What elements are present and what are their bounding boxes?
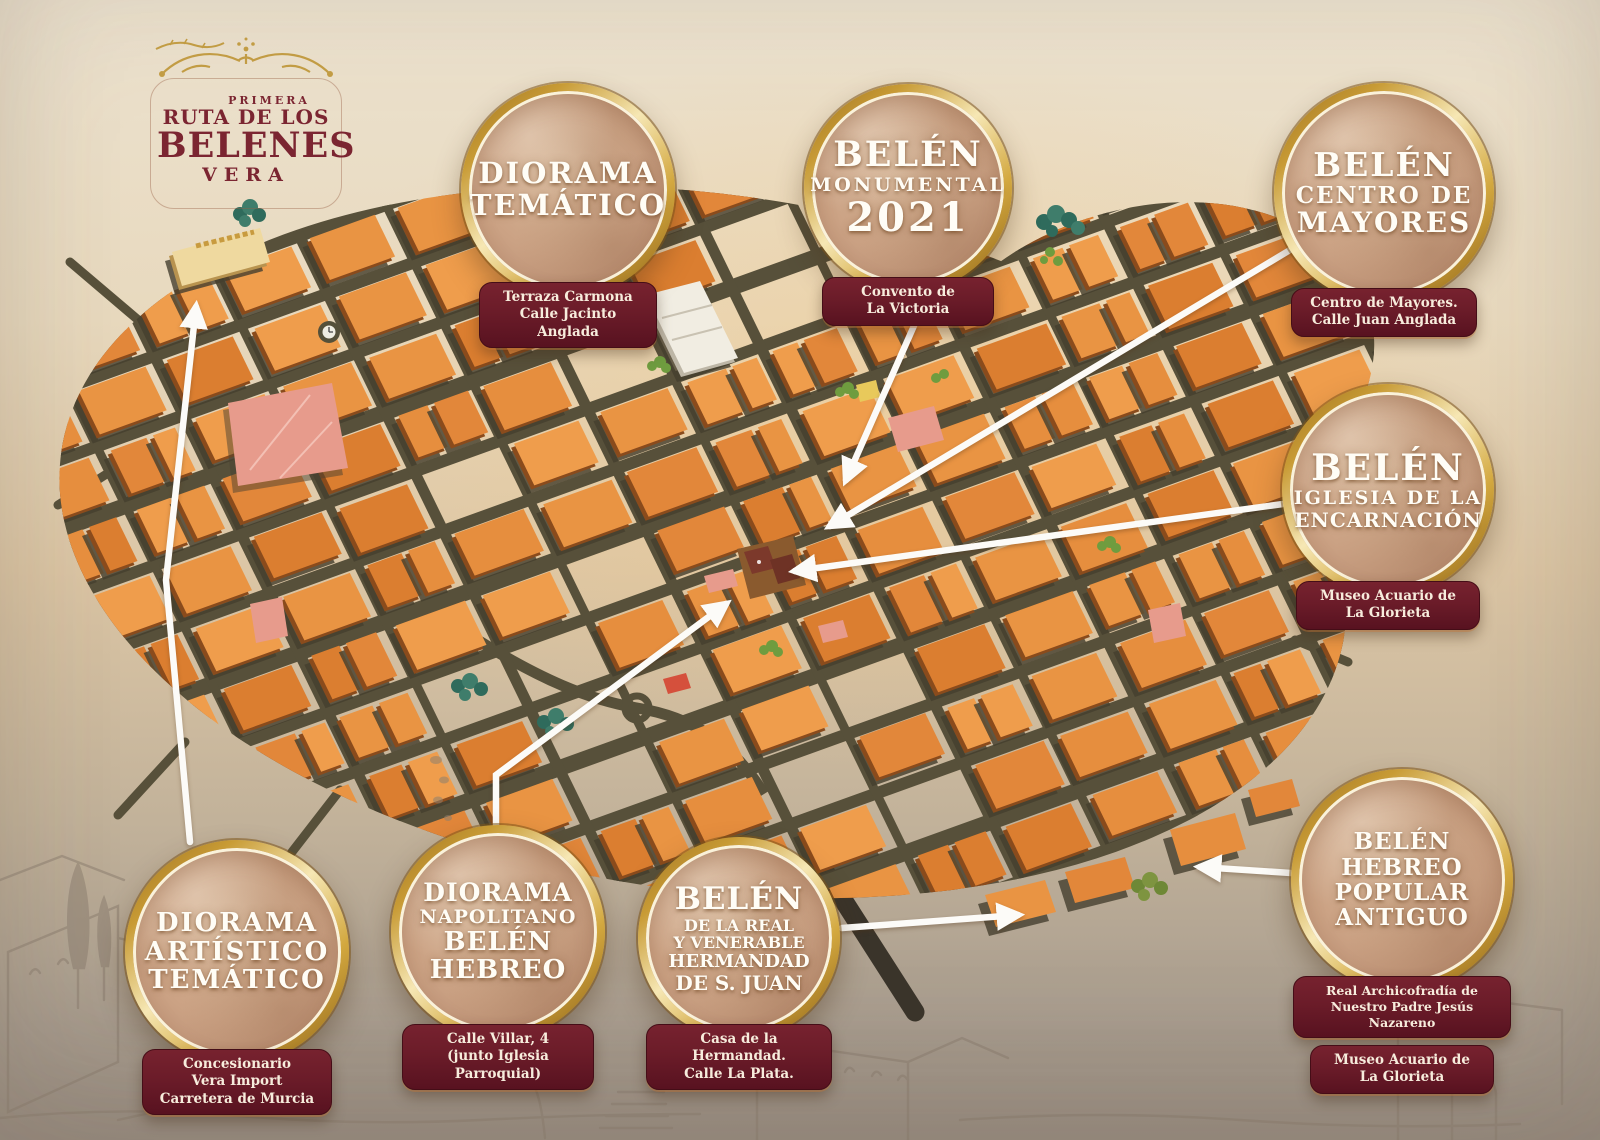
plaque-line: (junto Iglesia Parroquial) xyxy=(411,1048,585,1083)
title-line: DE S. JUAN xyxy=(675,972,802,994)
plaque-line: Casa de la Hermandad. xyxy=(655,1031,823,1066)
badge-belen-centro-de-mayores: BELÉN CENTRO DE MAYORES Centro de Mayore… xyxy=(1274,83,1494,337)
arrow-diorama-napolitano xyxy=(496,604,726,825)
badge-plaque: Calle Villar, 4 (junto Iglesia Parroquia… xyxy=(402,1024,594,1090)
title-line: NAPOLITANO xyxy=(420,907,577,928)
plaque-line: Calle La Plata. xyxy=(655,1066,823,1083)
title-line: HEBREO xyxy=(1341,855,1462,880)
title-line: ANTIGUO xyxy=(1335,905,1468,930)
plaque-line: Centro de Mayores. xyxy=(1300,295,1468,312)
badge-circle: BELÉN HEBREO POPULAR ANTIGUO xyxy=(1291,769,1513,991)
plaque-line: Real Archicofradía de xyxy=(1302,983,1502,999)
badge-circle: DIORAMA TEMÁTICO xyxy=(461,83,675,297)
title-line: ARTÍSTICO xyxy=(145,938,329,967)
badge-title: DIORAMA ARTÍSTICO TEMÁTICO xyxy=(133,848,341,1056)
plaque-line: Convento de xyxy=(831,284,985,301)
badge-plaque: Concesionario Vera Import Carretera de M… xyxy=(142,1049,332,1115)
title-line: POPULAR xyxy=(1335,880,1470,905)
badge-title: BELÉN IGLESIA DE LA ENCARNACIÓN xyxy=(1290,392,1486,588)
logo-line: BELENES xyxy=(157,128,335,165)
badge-circle: BELÉN CENTRO DE MAYORES xyxy=(1274,83,1494,303)
title-line: BELÉN xyxy=(1313,147,1455,183)
badge-title: BELÉN HEBREO POPULAR ANTIGUO xyxy=(1299,777,1505,983)
badge-circle: DIORAMA NAPOLITANO BELÉN HEBREO xyxy=(391,825,605,1039)
plaque-line: Carretera de Murcia xyxy=(151,1091,323,1108)
badge-title: BELÉN DE LA REAL Y VENERABLE HERMANDAD D… xyxy=(646,845,832,1031)
title-line: DIORAMA xyxy=(478,158,657,190)
badge-plaque: Convento de La Victoria xyxy=(822,277,994,326)
title-line: BELÉN xyxy=(444,928,553,957)
plaque-line: Nuestro Padre Jesús Nazareno xyxy=(1302,999,1502,1031)
plaque-line: Terraza Carmona xyxy=(488,289,648,306)
title-line: IGLESIA DE LA xyxy=(1294,488,1483,509)
arrow-iglesia-encarnacion xyxy=(795,504,1283,571)
title-line: BELÉN xyxy=(1354,829,1451,854)
title-line: TEMÁTICO xyxy=(470,190,666,222)
title-line: BELÉN xyxy=(833,136,983,175)
badge-title: DIORAMA NAPOLITANO BELÉN HEBREO xyxy=(399,833,597,1031)
badge-belen-iglesia-encarnacion: BELÉN IGLESIA DE LA ENCARNACIÓN Museo Ac… xyxy=(1282,384,1494,630)
badge-circle: BELÉN MONUMENTAL 2021 xyxy=(804,84,1012,292)
belenes-route-poster: PRIMERA RUTA DE LOS BELENES VERA DIORAMA… xyxy=(0,0,1600,1140)
badge-plaque: Casa de la Hermandad. Calle La Plata. xyxy=(646,1024,832,1090)
badge-hermandad-san-juan: BELÉN DE LA REAL Y VENERABLE HERMANDAD D… xyxy=(638,837,840,1090)
plaque-line: La Victoria xyxy=(831,301,985,318)
arrow-diorama-artistico xyxy=(166,307,196,842)
title-line: BELÉN xyxy=(675,882,804,916)
plaque-line: Calle Jacinto Anglada xyxy=(488,306,648,341)
plaque-line: Calle Villar, 4 xyxy=(411,1031,585,1048)
badge-title: DIORAMA TEMÁTICO xyxy=(469,91,667,289)
title-line: 2021 xyxy=(846,196,969,240)
title-line: Y VENERABLE xyxy=(673,934,804,952)
title-line: ENCARNACIÓN xyxy=(1294,509,1481,531)
title-line: HERMANDAD xyxy=(668,952,809,972)
arrow-hebreo-popular xyxy=(1200,867,1291,873)
plaque-line: Museo Acuario de xyxy=(1319,1052,1485,1069)
badge-plaque: Centro de Mayores. Calle Juan Anglada xyxy=(1291,288,1477,337)
badge-circle: BELÉN DE LA REAL Y VENERABLE HERMANDAD D… xyxy=(638,837,840,1039)
plaque-line: Vera Import xyxy=(151,1073,323,1090)
badge-title: BELÉN CENTRO DE MAYORES xyxy=(1282,91,1486,295)
badge-diorama-artistico-tematico: DIORAMA ARTÍSTICO TEMÁTICO Concesionario… xyxy=(125,840,349,1115)
plaque-line: La Glorieta xyxy=(1319,1069,1485,1086)
title-line: BELÉN xyxy=(1311,449,1465,489)
badge-plaque: Terraza Carmona Calle Jacinto Anglada xyxy=(479,282,657,348)
badge-plaque: Museo Acuario de La Glorieta xyxy=(1310,1045,1494,1094)
title-line: TEMÁTICO xyxy=(148,966,326,995)
badge-circle: DIORAMA ARTÍSTICO TEMÁTICO xyxy=(125,840,349,1064)
badge-hebreo-popular-antiguo: BELÉN HEBREO POPULAR ANTIGUO Real Archic… xyxy=(1291,769,1513,1094)
badge-plaque: Real Archicofradía de Nuestro Padre Jesú… xyxy=(1293,976,1511,1038)
route-logo: PRIMERA RUTA DE LOS BELENES VERA xyxy=(150,36,342,209)
title-line: DIORAMA xyxy=(423,879,572,907)
badge-plaque: Museo Acuario de La Glorieta xyxy=(1296,581,1480,630)
title-line: CENTRO DE xyxy=(1296,183,1473,208)
badge-diorama-napolitano: DIORAMA NAPOLITANO BELÉN HEBREO Calle Vi… xyxy=(391,825,605,1090)
title-line: MAYORES xyxy=(1297,208,1472,239)
title-line: HEBREO xyxy=(430,956,566,985)
badge-title: BELÉN MONUMENTAL 2021 xyxy=(812,92,1004,284)
badge-belen-monumental: BELÉN MONUMENTAL 2021 Convento de La Vic… xyxy=(804,84,1012,326)
plaque-line: Museo Acuario de xyxy=(1305,588,1471,605)
plaque-line: Calle Juan Anglada xyxy=(1300,312,1468,329)
title-line: DIORAMA xyxy=(156,909,318,938)
title-line: DE LA REAL xyxy=(684,917,794,935)
plaque-line: Concesionario xyxy=(151,1056,323,1073)
badge-circle: BELÉN IGLESIA DE LA ENCARNACIÓN xyxy=(1282,384,1494,596)
gold-sprig-icon xyxy=(150,36,230,56)
title-line: MONUMENTAL xyxy=(810,175,1006,196)
arrow-hermandad-san-juan xyxy=(842,915,1018,928)
logo-frame: PRIMERA RUTA DE LOS BELENES VERA xyxy=(150,78,342,209)
logo-line: VERA xyxy=(157,166,335,186)
badge-diorama-tematico: DIORAMA TEMÁTICO Terraza Carmona Calle J… xyxy=(461,83,675,348)
plaque-line: La Glorieta xyxy=(1305,605,1471,622)
